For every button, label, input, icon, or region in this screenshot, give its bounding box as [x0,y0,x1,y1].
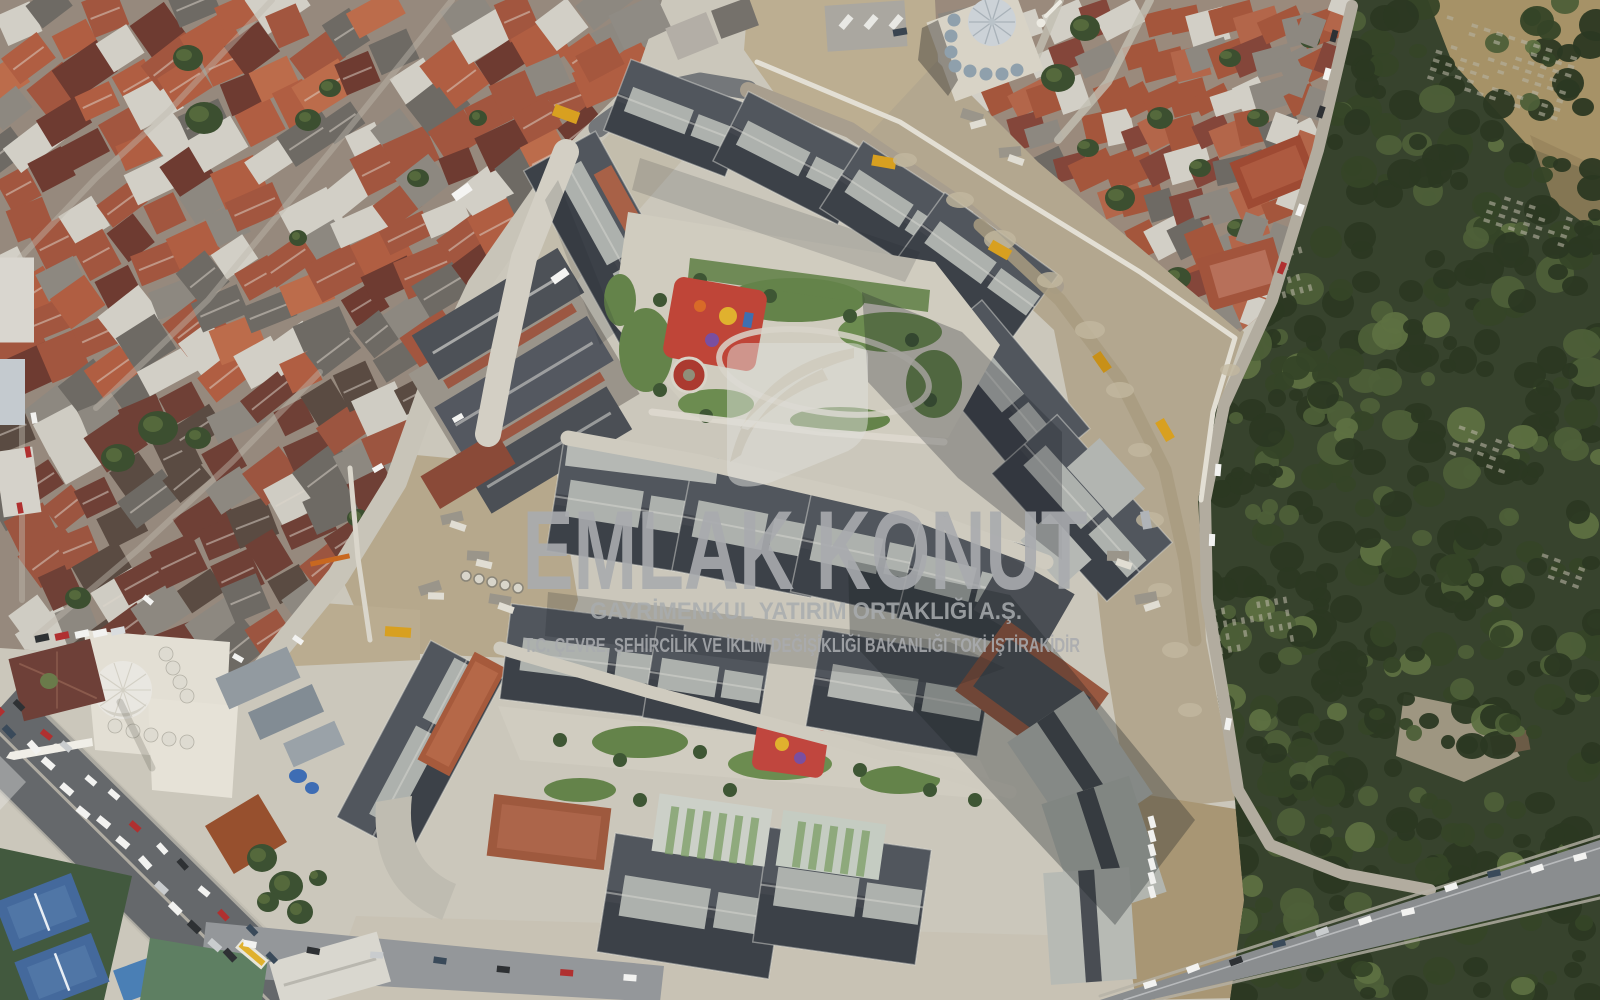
svg-text:T.C. ÇEVRE, ŞEHİRCİLİK VE İKLİ: T.C. ÇEVRE, ŞEHİRCİLİK VE İKLİM DEĞİŞİKL… [524,633,1080,657]
svg-text:GAYRİMENKUL YATIRIM ORTAKLIĞI: GAYRİMENKUL YATIRIM ORTAKLIĞI A.Ş. [590,597,1022,625]
svg-text:EMLAK KONUT: EMLAK KONUT [523,488,1088,613]
